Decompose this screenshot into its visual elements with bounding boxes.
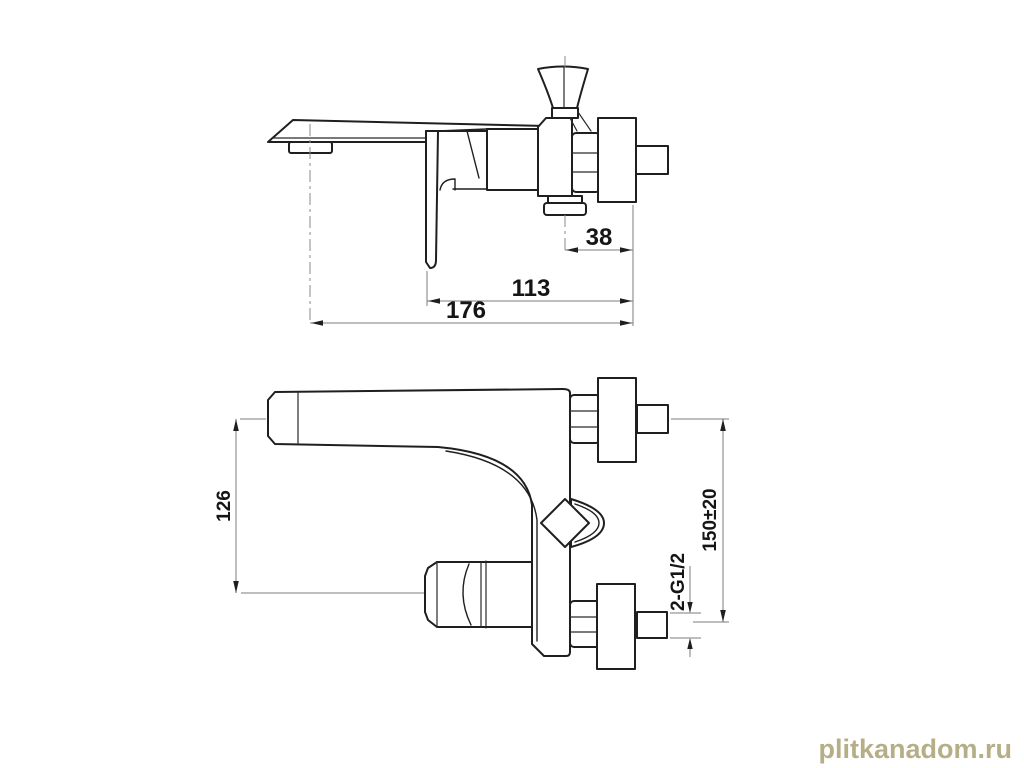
handle-lever-top-view (426, 131, 438, 268)
front-view: 126 150±20 2-G1/2 (214, 378, 729, 669)
dimension-label-113: 113 (512, 275, 551, 302)
pipe-connector-top-connection (637, 405, 668, 433)
bottom-wall-connection (570, 584, 667, 669)
top-view: 38 113 176 (268, 56, 668, 326)
hex-nut-top-view (572, 133, 600, 192)
diverter-outlet (544, 196, 586, 215)
technical-drawing-page: 38 113 176 (0, 0, 1024, 768)
wall-flange-bottom-connection (597, 584, 635, 669)
valve-body (538, 118, 572, 196)
top-wall-connection (570, 378, 668, 462)
dim-arrow-left (566, 247, 578, 252)
hex-nut-top-connection (570, 395, 600, 443)
dim-arrow-right (620, 247, 632, 252)
pipe-connector-bottom-connection (637, 612, 667, 638)
wall-flange-top-view (598, 118, 636, 202)
dimension-38: 38 (565, 224, 633, 253)
mixer-body-top-view (438, 118, 572, 196)
watermark: plitkanadom.ru plitkanadom.ru (818, 734, 1014, 766)
dimension-label-150: 150±20 (700, 488, 721, 551)
dimension-label-176: 176 (446, 297, 486, 324)
dimension-126: 126 (214, 419, 239, 593)
dimension-thread: 2-G1/2 (668, 553, 701, 657)
hex-nut-bottom-connection (570, 601, 600, 647)
technical-drawing-canvas: 38 113 176 (0, 0, 1024, 768)
watermark-text: plitkanadom.ru (818, 734, 1012, 764)
dimension-label-38: 38 (586, 224, 613, 251)
handle-front-view (425, 561, 532, 628)
wall-flange-top-connection (598, 378, 636, 462)
pipe-connector-top-view (636, 146, 668, 174)
cartridge-housing (487, 129, 538, 190)
dimension-label-126: 126 (214, 490, 235, 522)
dimension-label-thread: 2-G1/2 (668, 553, 689, 611)
